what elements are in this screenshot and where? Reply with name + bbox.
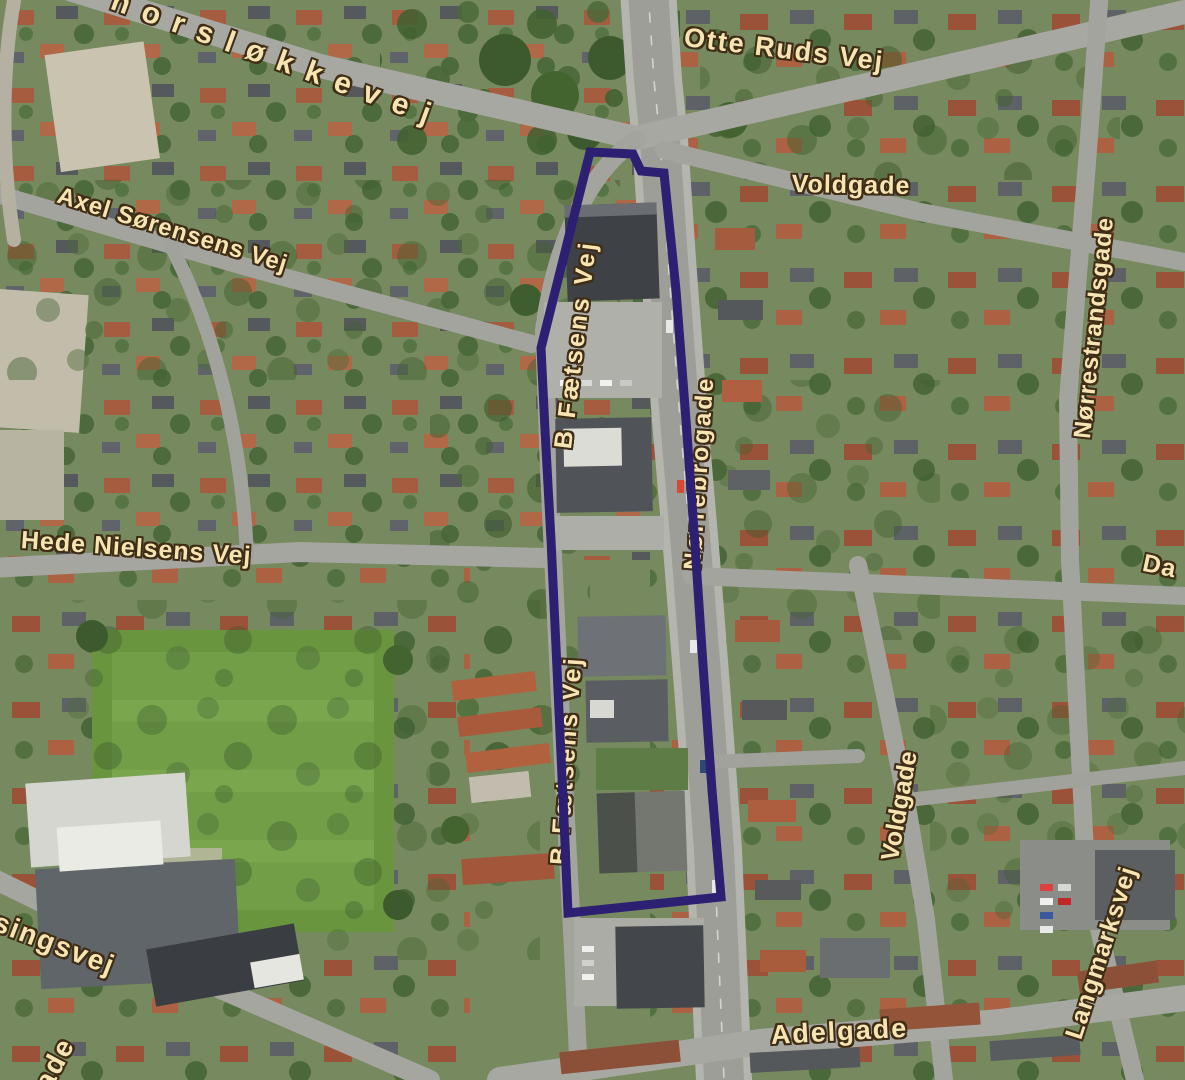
street-label-adelgade: Adelgade bbox=[770, 1013, 909, 1051]
street-labels: horsløkkevej Otte Ruds Vej Axel Sørensen… bbox=[0, 0, 1185, 1080]
street-label-voldgade-north: Voldgade bbox=[791, 170, 910, 201]
street-label-voldgade-south: Voldgade bbox=[876, 749, 924, 863]
street-label-hede-nielsens-vej: Hede Nielsens Vej bbox=[20, 526, 252, 571]
street-label-norrebrogade: Nørrebrogade bbox=[679, 375, 721, 571]
street-label-otte-ruds-vej: Otte Ruds Vej bbox=[682, 22, 886, 77]
street-label-b-faetsens-vej: B Fætsens Vej bbox=[549, 239, 603, 451]
street-label-norrestrandsgade: Nørrestrandsgade bbox=[1069, 215, 1120, 439]
map-canvas[interactable]: horsløkkevej Otte Ruds Vej Axel Sørensen… bbox=[0, 0, 1185, 1080]
street-label-axel-sorensens-vej: Axel Sørensens Vej bbox=[54, 182, 291, 279]
street-label-gade-partial: ade bbox=[28, 1032, 82, 1080]
street-label-da-partial: Da bbox=[1140, 549, 1179, 584]
street-label-fussingsvej-partial: ssingsvej bbox=[0, 900, 120, 982]
street-label-b-faetsens-vej-south: B Fætsens Vej bbox=[545, 655, 589, 866]
street-label-horslokkevej: horsløkkevej bbox=[106, 0, 448, 136]
street-label-langmarksvej: Langmarksvej bbox=[1060, 863, 1143, 1043]
